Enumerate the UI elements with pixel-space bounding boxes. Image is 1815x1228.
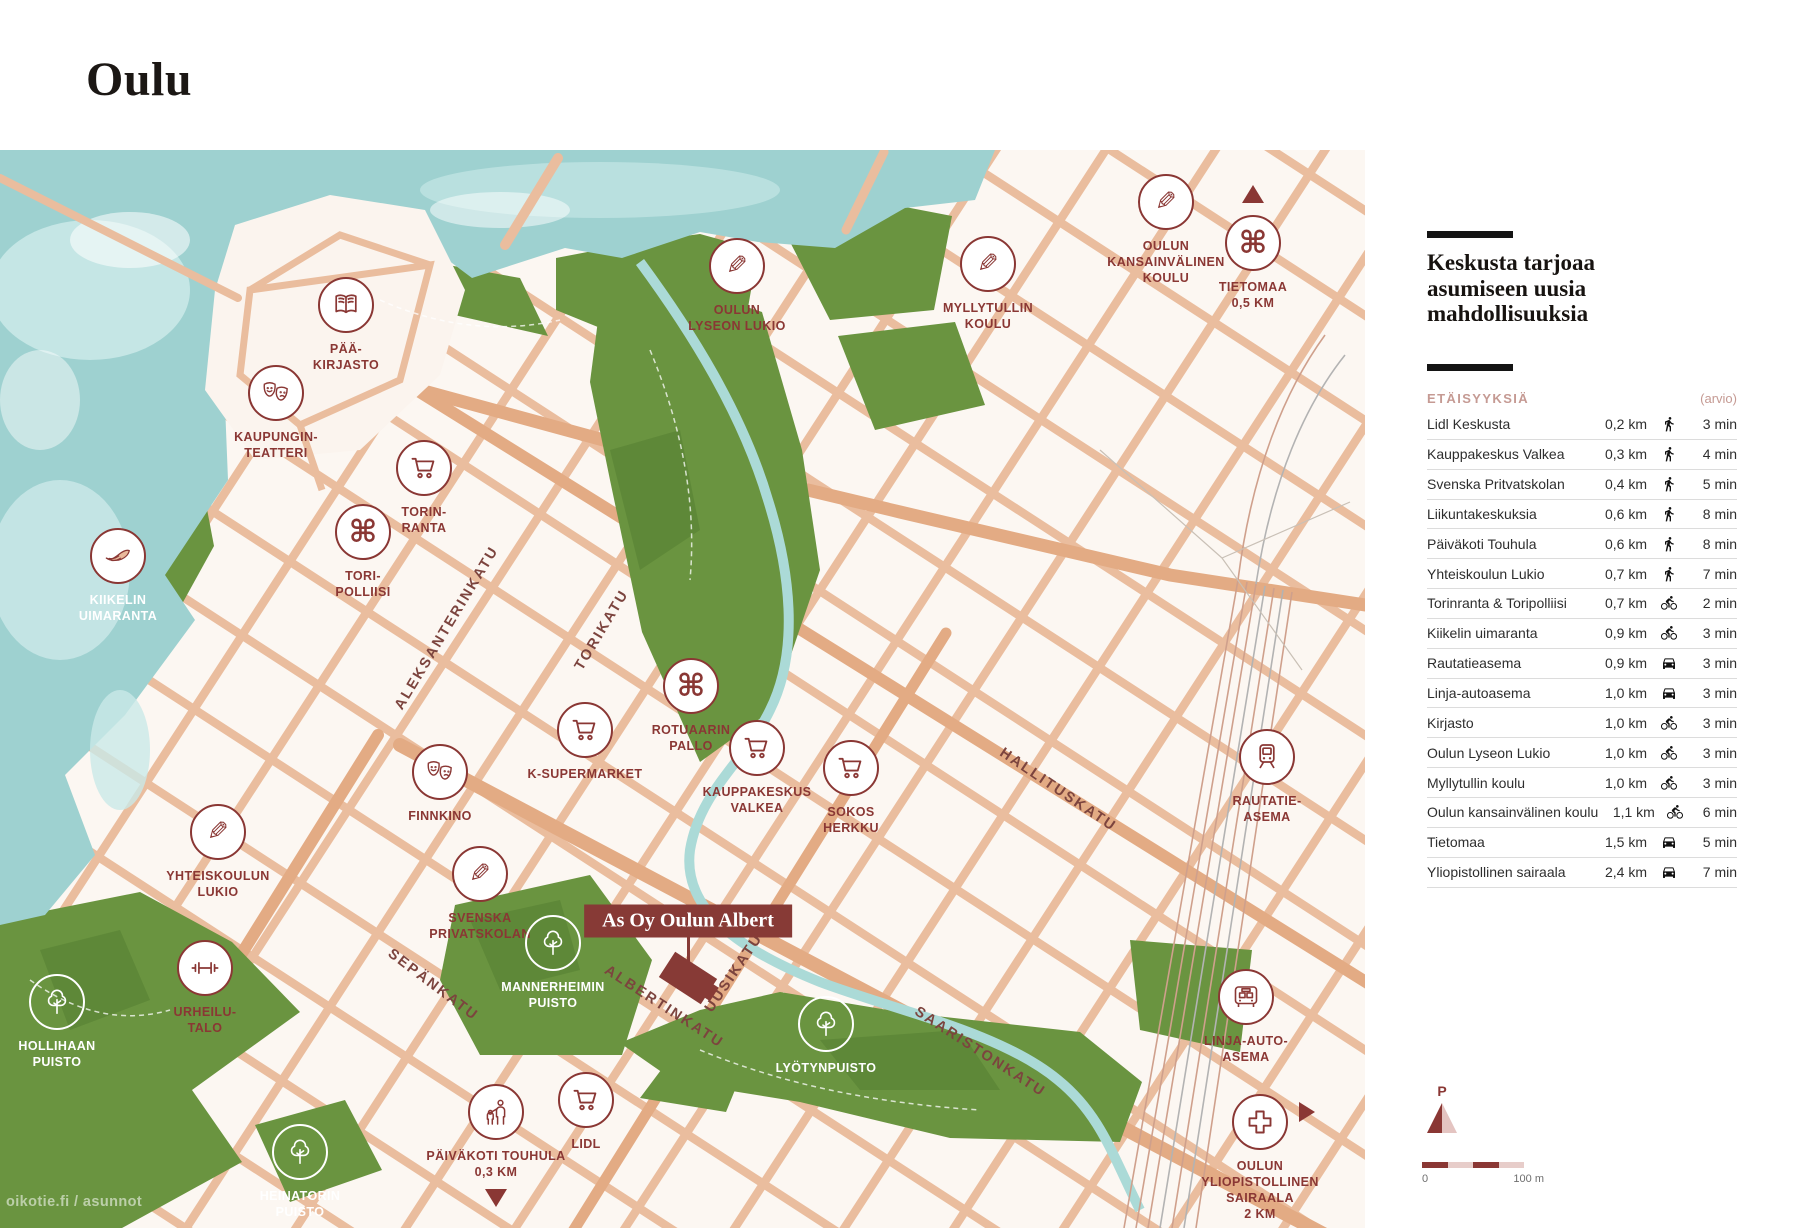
distance-value: 1,0 km	[1585, 745, 1647, 761]
poi-label-line: OULUN	[1107, 238, 1224, 254]
distances-title: ETÄISYYKSIÄ	[1427, 391, 1529, 406]
distance-value: 1,0 km	[1585, 775, 1647, 791]
distance-row: Liikuntakeskuksia0,6 km8 min	[1427, 500, 1737, 530]
train-icon	[1239, 729, 1295, 785]
cart-icon	[729, 720, 785, 776]
poi-label: SOKOSHERKKU	[823, 804, 879, 836]
poi-label-line: 2 KM	[1201, 1206, 1319, 1222]
distance-table-header: ETÄISYYKSIÄ (arvio)	[1427, 391, 1737, 406]
time-value: 3 min	[1691, 685, 1737, 701]
direction-pointer-icon	[1299, 1102, 1315, 1122]
poi-label: PÄÄ-KIRJASTO	[313, 341, 379, 373]
poi-label: ROTUAARINPALLO	[652, 722, 731, 754]
poi-label-line: TORIN-	[401, 504, 446, 520]
distance-table: Lidl Keskusta0,2 km3 minKauppakeskus Val…	[1427, 410, 1737, 888]
page: Oulu	[0, 0, 1815, 1228]
place-name: Lidl Keskusta	[1427, 416, 1585, 432]
poi-label-line: LYÖTYNPUISTO	[776, 1060, 877, 1076]
cart-icon	[558, 1072, 614, 1128]
time-value: 2 min	[1691, 595, 1737, 611]
tree-icon	[272, 1124, 328, 1180]
bike-icon	[1647, 625, 1691, 641]
place-name: Liikuntakeskuksia	[1427, 506, 1585, 522]
poi-label: LINJA-AUTO-ASEMA	[1204, 1033, 1288, 1065]
pencil-icon: ✎	[452, 846, 508, 902]
poi-label-line: YLIOPISTOLLINEN	[1201, 1174, 1319, 1190]
poi-label-line: LIDL	[571, 1136, 600, 1152]
heading-line: mahdollisuuksia	[1427, 301, 1595, 327]
knot-icon: ⌘	[335, 504, 391, 560]
poi-label-line: ASEMA	[1232, 809, 1301, 825]
watermark: oikotie.fi / asunnot	[6, 1194, 142, 1210]
distance-row: Yliopistollinen sairaala2,4 km7 min	[1427, 858, 1737, 888]
poi-label-line: PÄIVÄKOTI TOUHULA	[426, 1148, 565, 1164]
time-value: 3 min	[1691, 655, 1737, 671]
distance-value: 2,4 km	[1585, 864, 1647, 880]
place-name: Kiikelin uimaranta	[1427, 625, 1585, 641]
poi-label-line: SAIRAALA	[1201, 1190, 1319, 1206]
poi-label-line: HOLLIHAAN	[18, 1038, 95, 1054]
distance-row: Kauppakeskus Valkea0,3 km4 min	[1427, 440, 1737, 470]
place-name: Svenska Pritvatskolan	[1427, 476, 1585, 492]
poi-label-line: PUISTO	[18, 1054, 95, 1070]
poi-label-line: HEINATORIN	[260, 1188, 341, 1204]
poi-label: TORI-POLLIISI	[335, 568, 390, 600]
distance-value: 0,9 km	[1585, 625, 1647, 641]
poi-label-line: KAUPUNGIN-	[234, 429, 318, 445]
time-value: 3 min	[1691, 416, 1737, 432]
poi-label: RAUTATIE-ASEMA	[1232, 793, 1301, 825]
poi-label-line: K-SUPERMARKET	[528, 766, 643, 782]
heading-line: Keskusta tarjoaa	[1427, 250, 1595, 276]
poi-label-line: LINJA-AUTO-	[1204, 1033, 1288, 1049]
distance-value: 1,0 km	[1585, 715, 1647, 731]
poi-label-line: URHEILU-	[174, 1004, 237, 1020]
pencil-icon: ✎	[1138, 174, 1194, 230]
info-panel: Keskusta tarjoaa asumiseen uusia mahdoll…	[1427, 0, 1737, 1228]
walk-icon	[1647, 476, 1691, 492]
place-name: Kauppakeskus Valkea	[1427, 446, 1585, 462]
distance-value: 0,6 km	[1585, 536, 1647, 552]
poi-label: TIETOMAA0,5 KM	[1219, 279, 1287, 311]
bike-icon	[1647, 595, 1691, 611]
poi-label-line: SOKOS	[823, 804, 879, 820]
pencil-icon: ✎	[960, 236, 1016, 292]
distance-value: 1,1 km	[1598, 804, 1655, 820]
walk-icon	[1647, 566, 1691, 582]
car-icon	[1647, 685, 1691, 701]
poi-label: PÄIVÄKOTI TOUHULA0,3 KM	[426, 1148, 565, 1180]
poi-label-line: RANTA	[401, 520, 446, 536]
bike-icon	[1655, 804, 1695, 820]
poi-label-line: PALLO	[652, 738, 731, 754]
poi-label: HOLLIHAANPUISTO	[18, 1038, 95, 1070]
poi-label: KAUPUNGIN-TEATTERI	[234, 429, 318, 461]
family-icon	[468, 1084, 524, 1140]
time-value: 5 min	[1691, 834, 1737, 850]
place-name: Torinranta & Toripolliisi	[1427, 595, 1585, 611]
poi-label-line: PUISTO	[260, 1204, 341, 1220]
masks-icon	[412, 744, 468, 800]
poi-label: OULUNYLIOPISTOLLINENSAIRAALA2 KM	[1201, 1158, 1319, 1222]
book-icon	[318, 277, 374, 333]
distance-value: 0,4 km	[1585, 476, 1647, 492]
scale-bar: 0 100 m	[1422, 1162, 1542, 1185]
distance-value: 1,5 km	[1585, 834, 1647, 850]
cart-icon	[396, 440, 452, 496]
car-icon	[1647, 864, 1691, 880]
time-value: 7 min	[1691, 864, 1737, 880]
poi-label: OULUNKANSAINVÄLINENKOULU	[1107, 238, 1224, 286]
time-value: 3 min	[1691, 625, 1737, 641]
distance-value: 0,6 km	[1585, 506, 1647, 522]
cart-icon	[823, 740, 879, 796]
sidebar-heading: Keskusta tarjoaa asumiseen uusia mahdoll…	[1427, 250, 1595, 327]
distance-row: Päiväkoti Touhula0,6 km8 min	[1427, 529, 1737, 559]
poi-label-line: 0,5 KM	[1219, 295, 1287, 311]
distance-row: Kiikelin uimaranta0,9 km3 min	[1427, 619, 1737, 649]
place-name: Oulun kansainvälinen koulu	[1427, 804, 1598, 820]
car-icon	[1647, 655, 1691, 671]
bike-icon	[1647, 715, 1691, 731]
poi-label-line: ASEMA	[1204, 1049, 1288, 1065]
poi-label-line: KOULU	[1107, 270, 1224, 286]
poi-label-line: OULUN	[1201, 1158, 1319, 1174]
poi-label-line: TIETOMAA	[1219, 279, 1287, 295]
dumbbell-icon	[177, 940, 233, 996]
distance-value: 0,2 km	[1585, 416, 1647, 432]
place-name: Yhteiskoulun Lukio	[1427, 566, 1585, 582]
poi-label-line: PRIVATSKOLAN	[429, 926, 531, 942]
poi-label-line: TALO	[174, 1020, 237, 1036]
poi-label-line: KANSAINVÄLINEN	[1107, 254, 1224, 270]
pencil-icon: ✎	[709, 238, 765, 294]
poi-label: K-SUPERMARKET	[528, 766, 643, 782]
poi-label-line: 0,3 KM	[426, 1164, 565, 1180]
place-name: Myllytullin koulu	[1427, 775, 1585, 791]
time-value: 8 min	[1691, 536, 1737, 552]
time-value: 3 min	[1691, 745, 1737, 761]
poi-label-line: HERKKU	[823, 820, 879, 836]
time-value: 3 min	[1691, 775, 1737, 791]
poi-label: OULUNLYSEON LUKIO	[688, 302, 785, 334]
estimate-note: (arvio)	[1700, 391, 1737, 406]
bus-icon	[1218, 969, 1274, 1025]
place-name: Kirjasto	[1427, 715, 1585, 731]
poi-label: YHTEISKOULUNLUKIO	[166, 868, 269, 900]
poi-label-line: KIRJASTO	[313, 357, 379, 373]
distance-row: Torinranta & Toripolliisi0,7 km2 min	[1427, 589, 1737, 619]
knot-icon: ⌘	[663, 658, 719, 714]
distance-row: Lidl Keskusta0,2 km3 min	[1427, 410, 1737, 440]
poi-label: SVENSKAPRIVATSKOLAN	[429, 910, 531, 942]
distance-row: Rautatieasema0,9 km3 min	[1427, 649, 1737, 679]
poi-label-line: UIMARANTA	[79, 608, 157, 624]
time-value: 5 min	[1691, 476, 1737, 492]
direction-pointer-icon	[485, 1189, 507, 1207]
time-value: 8 min	[1691, 506, 1737, 522]
place-name: Päiväkoti Touhula	[1427, 536, 1585, 552]
poi-label: LIDL	[571, 1136, 600, 1152]
poi-label-line: LYSEON LUKIO	[688, 318, 785, 334]
poi-label: MANNERHEIMINPUISTO	[501, 979, 604, 1011]
poi-label: FINNKINO	[408, 808, 472, 824]
scale-start: 0	[1422, 1173, 1428, 1185]
north-arrow-icon	[1425, 1101, 1459, 1135]
poi-label: URHEILU-TALO	[174, 1004, 237, 1036]
poi-label-line: FINNKINO	[408, 808, 472, 824]
pencil-icon: ✎	[190, 804, 246, 860]
bike-icon	[1647, 745, 1691, 761]
distance-row: Tietomaa1,5 km5 min	[1427, 828, 1737, 858]
poi-label-line: SVENSKA	[429, 910, 531, 926]
poi-label-line: PUISTO	[501, 995, 604, 1011]
distance-row: Svenska Pritvatskolan0,4 km5 min	[1427, 470, 1737, 500]
knot-icon: ⌘	[1225, 215, 1281, 271]
tree-icon	[525, 915, 581, 971]
time-value: 6 min	[1695, 804, 1737, 820]
time-value: 7 min	[1691, 566, 1737, 582]
distance-value: 0,9 km	[1585, 655, 1647, 671]
distance-value: 0,3 km	[1585, 446, 1647, 462]
scale-segments	[1422, 1162, 1524, 1168]
poi-label-line: LUKIO	[166, 884, 269, 900]
walk-icon	[1647, 446, 1691, 462]
poi-label: KAUPPAKESKUSVALKEA	[703, 784, 812, 816]
poi-label-line: ROTUAARIN	[652, 722, 731, 738]
poi-label-line: KAUPPAKESKUS	[703, 784, 812, 800]
poi-label: HEINATORINPUISTO	[260, 1188, 341, 1220]
poi-label-line: YHTEISKOULUN	[166, 868, 269, 884]
place-name: Yliopistollinen sairaala	[1427, 864, 1585, 880]
place-name: Oulun Lyseon Lukio	[1427, 745, 1585, 761]
poi-label-line: PÄÄ-	[313, 341, 379, 357]
walk-icon	[1647, 416, 1691, 432]
north-label: P	[1422, 1083, 1462, 1099]
poi-label-line: MANNERHEIMIN	[501, 979, 604, 995]
tree-icon	[29, 974, 85, 1030]
distance-row: Kirjasto1,0 km3 min	[1427, 708, 1737, 738]
direction-pointer-icon	[1242, 185, 1264, 203]
poi-label: TORIN-RANTA	[401, 504, 446, 536]
cross-icon	[1232, 1094, 1288, 1150]
compass: P	[1422, 1083, 1462, 1135]
poi-label: MYLLYTULLINKOULU	[943, 300, 1033, 332]
distance-row: Linja-autoasema1,0 km3 min	[1427, 679, 1737, 709]
scale-end: 100 m	[1513, 1173, 1544, 1185]
masks-icon	[248, 365, 304, 421]
distance-row: Oulun kansainvälinen koulu1,1 km6 min	[1427, 798, 1737, 828]
distance-row: Yhteiskoulun Lukio0,7 km7 min	[1427, 559, 1737, 589]
walk-icon	[1647, 506, 1691, 522]
divider-bar	[1427, 231, 1513, 238]
distance-value: 0,7 km	[1585, 566, 1647, 582]
place-name: Tietomaa	[1427, 834, 1585, 850]
place-name: Rautatieasema	[1427, 655, 1585, 671]
property-label: As Oy Oulun Albert	[584, 905, 792, 938]
poi-label-line: KIIKELIN	[79, 592, 157, 608]
poi-label-line: TEATTERI	[234, 445, 318, 461]
poi-label: KIIKELINUIMARANTA	[79, 592, 157, 624]
page-title: Oulu	[86, 52, 192, 107]
wave-icon	[90, 528, 146, 584]
distance-row: Oulun Lyseon Lukio1,0 km3 min	[1427, 738, 1737, 768]
bike-icon	[1647, 775, 1691, 791]
poi-label-line: VALKEA	[703, 800, 812, 816]
tree-icon	[798, 996, 854, 1052]
distance-row: Myllytullin koulu1,0 km3 min	[1427, 768, 1737, 798]
poi-label-line: MYLLYTULLIN	[943, 300, 1033, 316]
poi-label: LYÖTYNPUISTO	[776, 1060, 877, 1076]
poi-label-line: RAUTATIE-	[1232, 793, 1301, 809]
poi-label-line: TORI-	[335, 568, 390, 584]
distance-value: 0,7 km	[1585, 595, 1647, 611]
heading-line: asumiseen uusia	[1427, 276, 1595, 302]
cart-icon	[557, 702, 613, 758]
poi-label-line: KOULU	[943, 316, 1033, 332]
divider-bar	[1427, 364, 1513, 371]
time-value: 4 min	[1691, 446, 1737, 462]
car-icon	[1647, 834, 1691, 850]
walk-icon	[1647, 536, 1691, 552]
place-name: Linja-autoasema	[1427, 685, 1585, 701]
poi-label-line: POLLIISI	[335, 584, 390, 600]
time-value: 3 min	[1691, 715, 1737, 731]
poi-label-line: OULUN	[688, 302, 785, 318]
distance-value: 1,0 km	[1585, 685, 1647, 701]
